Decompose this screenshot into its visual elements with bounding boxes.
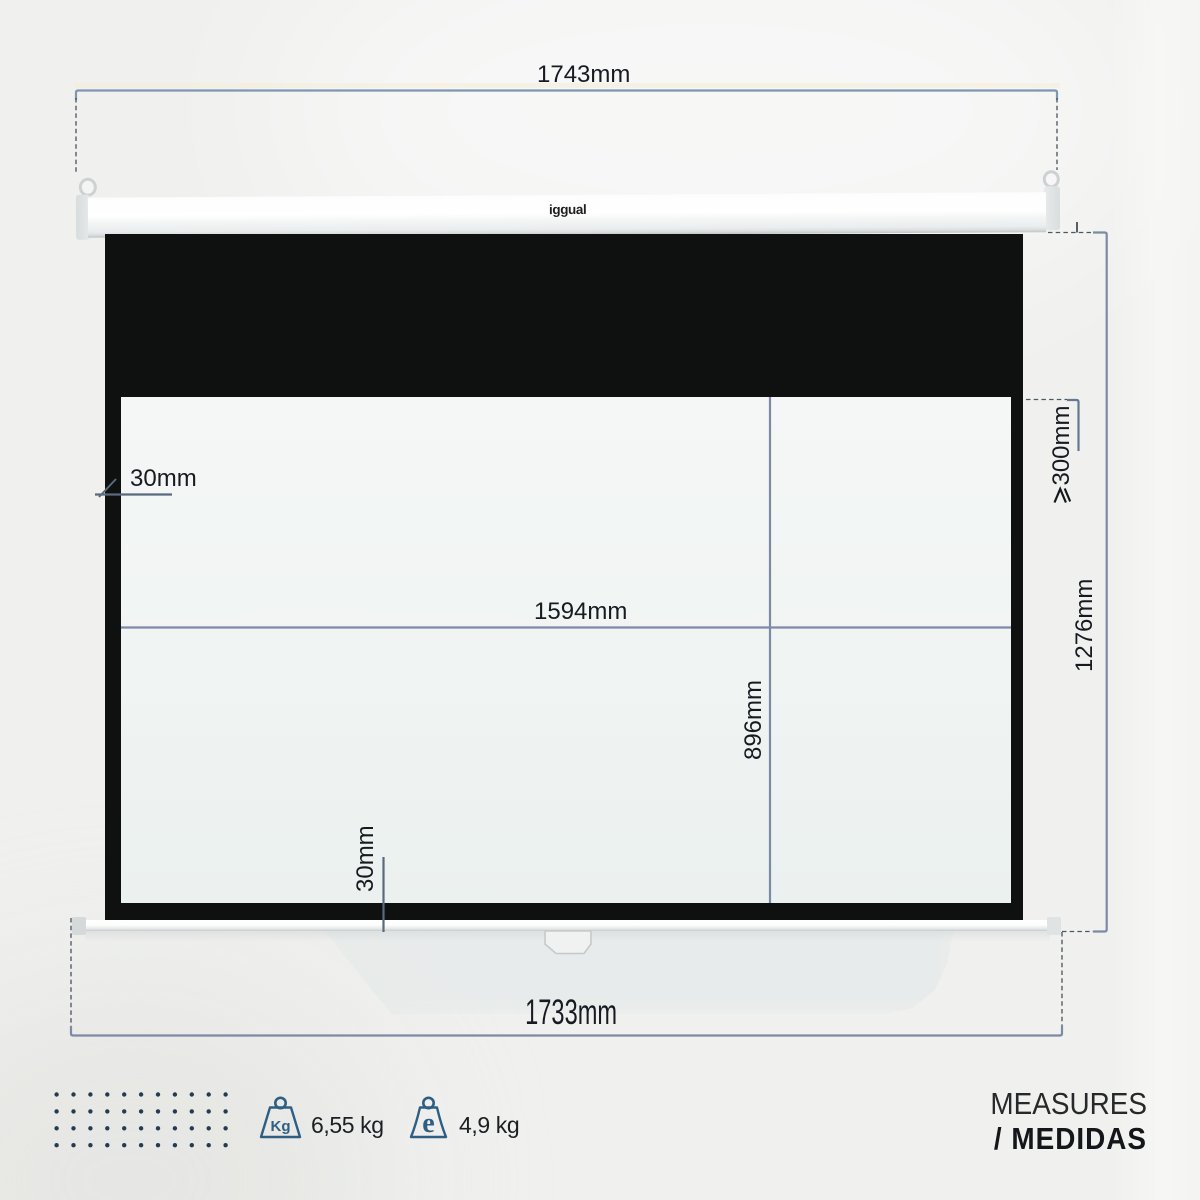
svg-text:e: e bbox=[422, 1108, 434, 1139]
svg-text:Kg: Kg bbox=[271, 1118, 291, 1135]
